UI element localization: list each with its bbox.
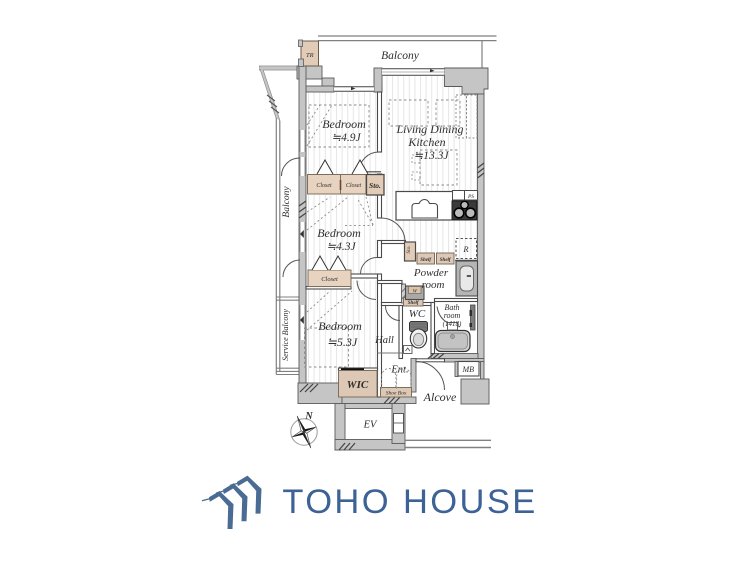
svg-text:R: R xyxy=(462,244,469,254)
svg-text:Bedroom: Bedroom xyxy=(317,226,361,240)
svg-text:Balcony: Balcony xyxy=(282,186,292,218)
svg-text:Shoe Box: Shoe Box xyxy=(386,391,407,397)
svg-text:Alcove: Alcove xyxy=(423,390,457,404)
svg-text:MB: MB xyxy=(462,365,475,374)
svg-text:Service Balcony: Service Balcony xyxy=(281,309,290,361)
svg-text:Sto.: Sto. xyxy=(406,245,412,253)
svg-text:Closet: Closet xyxy=(316,183,332,189)
svg-text:Bedroom: Bedroom xyxy=(318,319,362,333)
svg-text:Bedroom: Bedroom xyxy=(322,117,366,131)
svg-text:room: room xyxy=(422,279,445,291)
svg-text:TOHO HOUSE: TOHO HOUSE xyxy=(282,483,537,521)
svg-text:Hall: Hall xyxy=(374,335,394,346)
svg-text:EV: EV xyxy=(363,420,378,431)
svg-text:Shelf: Shelf xyxy=(440,258,452,263)
svg-text:TR: TR xyxy=(306,52,314,59)
svg-text:WC: WC xyxy=(409,308,426,320)
svg-text:≒4.9J: ≒4.9J xyxy=(331,132,361,144)
svg-text:(1418): (1418) xyxy=(443,320,462,328)
svg-text:WIC: WIC xyxy=(347,379,369,391)
svg-text:Balcony: Balcony xyxy=(381,50,420,62)
svg-text:Sto.: Sto. xyxy=(369,181,381,190)
svg-text:N: N xyxy=(304,411,313,422)
svg-text:Living Dining: Living Dining xyxy=(395,122,463,136)
svg-text:≒4.3J: ≒4.3J xyxy=(326,241,356,253)
svg-text:room: room xyxy=(444,311,461,320)
svg-text:Closet: Closet xyxy=(321,276,338,283)
svg-text:≒13.3J: ≒13.3J xyxy=(414,150,450,162)
svg-text:Ent.: Ent. xyxy=(390,365,408,376)
svg-text:Shelf: Shelf xyxy=(420,258,432,263)
svg-text:Shelf: Shelf xyxy=(408,301,420,306)
svg-text:Closet: Closet xyxy=(346,183,362,189)
svg-text:≒5.3J: ≒5.3J xyxy=(327,335,358,349)
svg-text:PS: PS xyxy=(467,194,474,200)
svg-text:Kitchen: Kitchen xyxy=(407,135,445,149)
svg-text:Powder: Powder xyxy=(413,267,449,279)
